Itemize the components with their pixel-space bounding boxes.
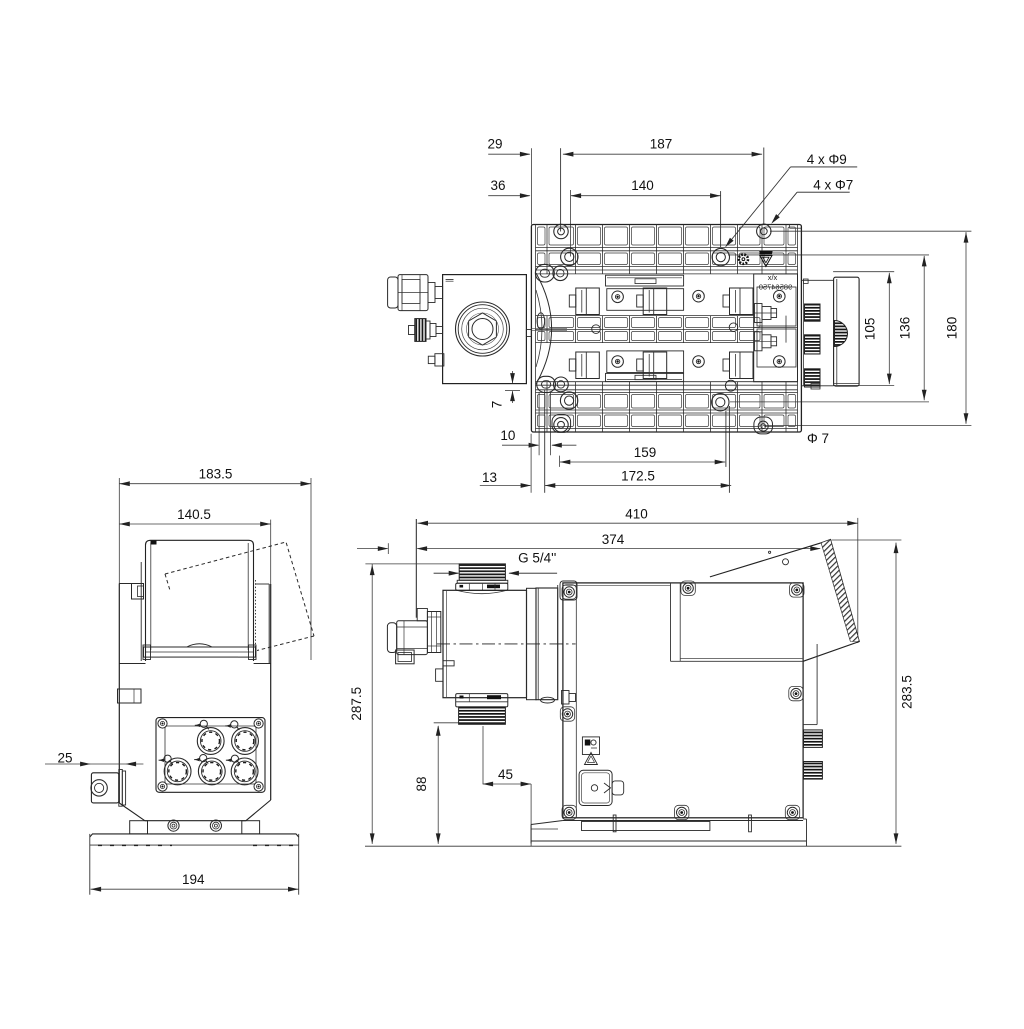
svg-text:45: 45	[498, 767, 513, 782]
svg-text:194: 194	[182, 872, 205, 887]
svg-text:x/x: x/x	[768, 273, 778, 282]
svg-text:140.5: 140.5	[177, 507, 211, 522]
svg-text:187: 187	[650, 137, 673, 152]
svg-text:287.5: 287.5	[349, 687, 364, 721]
svg-text:136: 136	[898, 317, 913, 340]
svg-text:36: 36	[490, 178, 505, 193]
svg-text:105: 105	[863, 318, 878, 341]
svg-text:283.5: 283.5	[900, 675, 915, 709]
svg-text:4 x Φ7: 4 x Φ7	[813, 178, 853, 193]
svg-text:172.5: 172.5	[621, 469, 655, 484]
svg-text:Φ 7: Φ 7	[807, 431, 829, 446]
svg-text:10: 10	[500, 428, 515, 443]
svg-text:180: 180	[945, 317, 960, 340]
svg-text:140: 140	[631, 178, 654, 193]
svg-text:88: 88	[414, 776, 429, 791]
svg-text:98564750: 98564750	[759, 283, 792, 292]
svg-text:7: 7	[490, 401, 505, 409]
svg-text:183.5: 183.5	[199, 466, 233, 481]
svg-text:25: 25	[57, 751, 72, 766]
svg-text:374: 374	[602, 532, 625, 547]
svg-text:159: 159	[634, 445, 657, 460]
svg-text:4 x Φ9: 4 x Φ9	[807, 152, 847, 167]
svg-text:29: 29	[487, 137, 502, 152]
svg-text:410: 410	[625, 507, 648, 522]
svg-text:13: 13	[482, 470, 497, 485]
svg-text:G 5/4'': G 5/4''	[518, 551, 556, 566]
